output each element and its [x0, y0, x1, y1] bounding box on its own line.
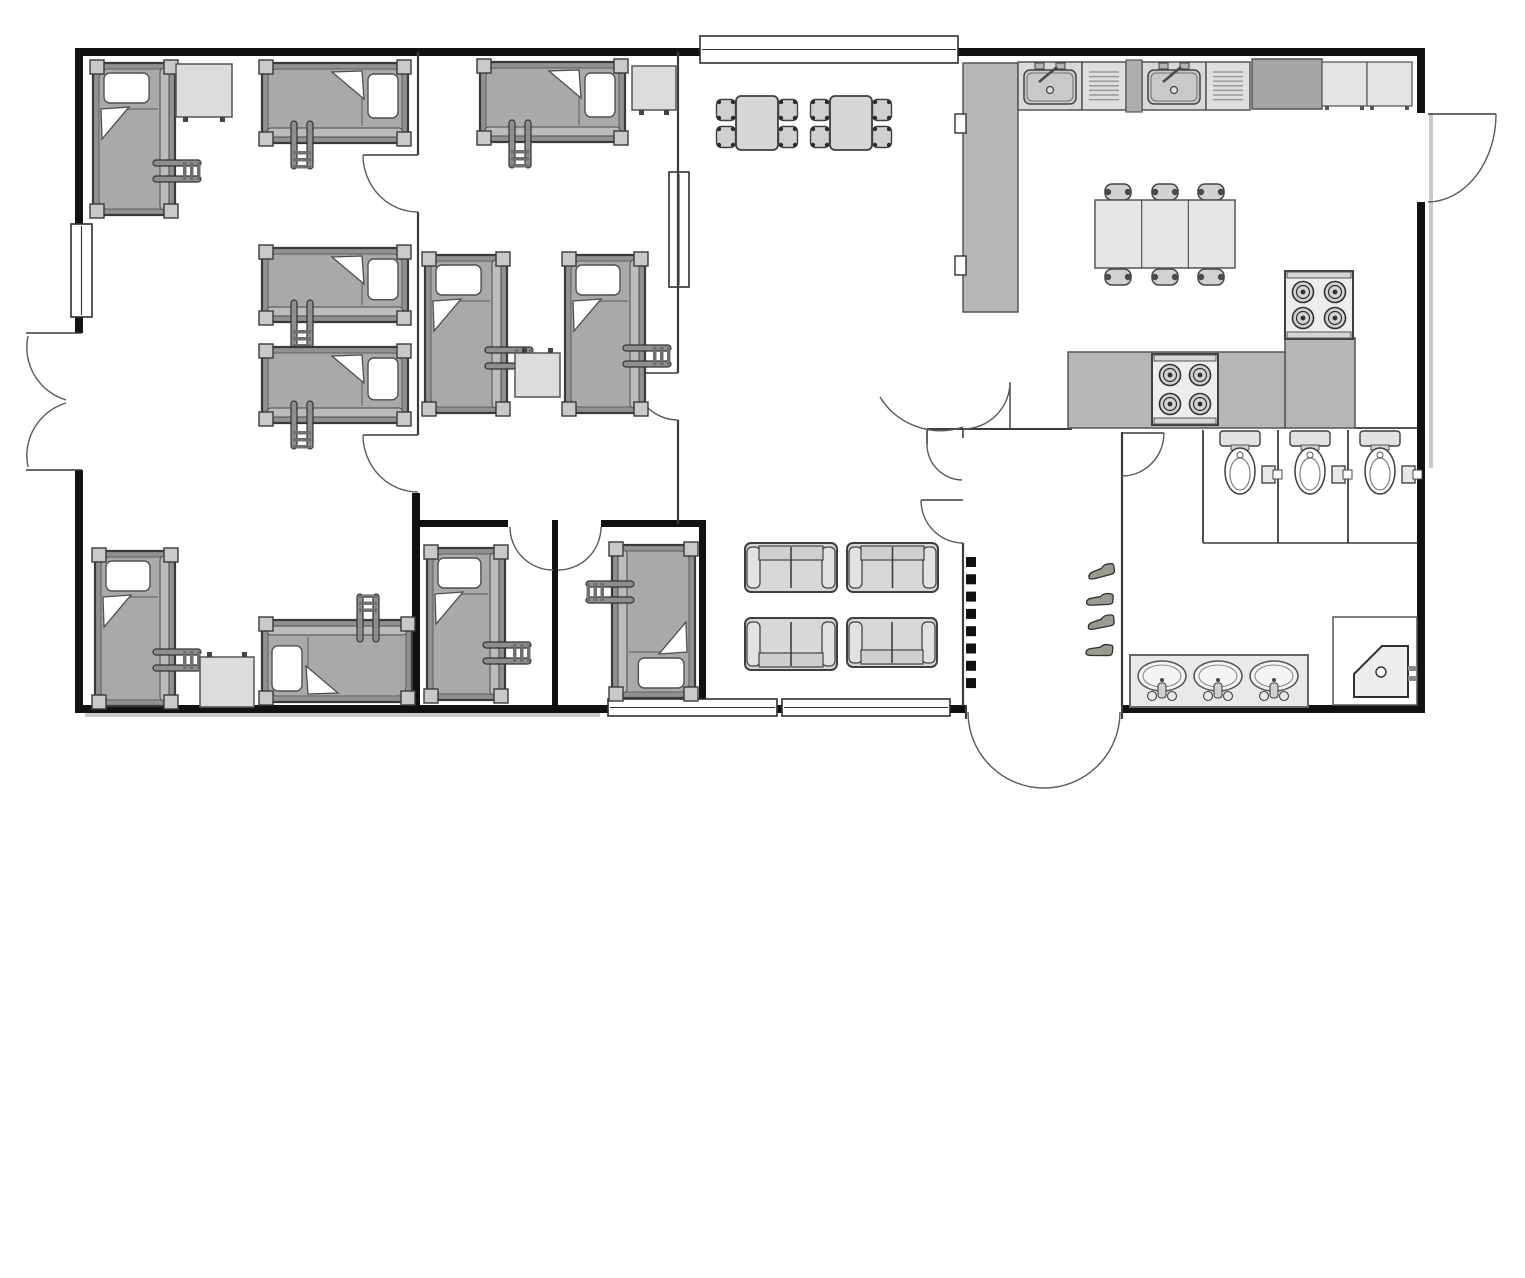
chair-caster	[731, 143, 735, 147]
door-swing-arc	[558, 527, 601, 570]
faucet	[1214, 683, 1222, 698]
chair-caster	[825, 127, 829, 131]
stove	[1285, 271, 1353, 339]
bed-post	[496, 402, 510, 416]
coat-hook	[966, 661, 976, 671]
table-with-chairs	[811, 96, 892, 150]
ladder-rung	[601, 583, 605, 601]
chair-caster	[811, 143, 815, 147]
chair-caster	[825, 100, 829, 104]
toilet	[1290, 431, 1330, 494]
dining-chair	[1198, 184, 1224, 200]
chair	[779, 127, 798, 148]
bed-post	[684, 542, 698, 556]
bed-post	[259, 344, 273, 358]
burner-center	[1333, 316, 1338, 321]
bed-post	[397, 344, 411, 358]
faucet-knob	[1224, 692, 1233, 701]
coat-hook	[966, 592, 976, 602]
ladder-rung	[293, 337, 311, 341]
chair-caster	[731, 100, 735, 104]
bed-pillow	[368, 259, 398, 300]
furniture-layer	[90, 59, 1422, 709]
shoe-outline	[1088, 563, 1116, 579]
ladder-rail	[153, 160, 201, 166]
wall	[1417, 202, 1425, 713]
chair-caster	[873, 143, 877, 147]
bed-post	[397, 412, 411, 426]
ladder-rail	[483, 642, 531, 648]
bed-post	[259, 245, 273, 259]
ladder-rail	[153, 665, 201, 671]
bunk-bed	[259, 594, 415, 705]
door-swing-arc	[27, 336, 66, 400]
window	[71, 224, 92, 317]
faucet-knob	[1260, 692, 1269, 701]
toilet-bowl	[1295, 448, 1325, 494]
tp-roll	[1413, 470, 1422, 479]
bed-post	[424, 689, 438, 703]
ladder-rung	[183, 162, 187, 180]
stove-handle	[1154, 355, 1216, 361]
burner-center	[1301, 290, 1306, 295]
bed-post	[92, 695, 106, 709]
sink-drain	[1047, 87, 1054, 94]
ladder-rung	[293, 438, 311, 442]
ladder-rung	[293, 165, 311, 169]
ladder-rail	[291, 401, 297, 449]
ladder-rung	[653, 347, 657, 365]
stove	[1152, 354, 1218, 425]
cabinet-body	[1367, 62, 1412, 106]
bed-post	[494, 689, 508, 703]
bunk-bed	[562, 252, 671, 416]
kitchen-cabinet	[1322, 62, 1367, 110]
chair-caster	[779, 143, 783, 147]
bed-post	[609, 687, 623, 701]
ladder-rung	[293, 445, 311, 449]
ladder-rung	[293, 151, 311, 155]
desk-foot	[522, 348, 527, 353]
wall-shadow	[1429, 113, 1433, 468]
l-counter	[1285, 338, 1355, 428]
ladder-rail	[357, 594, 363, 642]
bed-post	[259, 691, 273, 705]
chair-caster	[779, 100, 783, 104]
sofa-armrest	[822, 622, 835, 666]
toilet-bowl	[1225, 448, 1255, 494]
ladder-rail	[373, 594, 379, 642]
ladder-rail	[509, 120, 515, 168]
bed-pillow	[638, 658, 684, 688]
toilet-tank	[1360, 431, 1400, 446]
bed-post	[92, 548, 106, 562]
burner-center	[1168, 373, 1173, 378]
ladder-rung	[660, 347, 664, 365]
chair-caster	[811, 127, 815, 131]
bed-post	[634, 402, 648, 416]
door-swing-arc	[921, 500, 963, 543]
faucet-knob	[1204, 692, 1213, 701]
chair	[873, 127, 892, 148]
door-swing-arc	[510, 527, 553, 570]
chair	[873, 100, 892, 121]
bed-post	[90, 204, 104, 218]
chair-caster	[717, 143, 721, 147]
bed-post	[562, 252, 576, 266]
desk-top	[200, 657, 254, 707]
chair-arm	[1125, 274, 1131, 280]
bunk-rail	[160, 556, 169, 701]
bed-post	[259, 311, 273, 325]
sofa	[745, 618, 837, 670]
bed-post	[397, 245, 411, 259]
bed-post	[164, 204, 178, 218]
stove-handle	[1287, 272, 1351, 278]
wall	[601, 520, 705, 527]
wall	[75, 470, 83, 713]
cabinet-foot	[1370, 106, 1374, 110]
door-swing-arc	[880, 397, 963, 431]
chair-arm	[1218, 189, 1224, 195]
kitchen-dining-set	[1095, 184, 1235, 285]
ladder-rail	[623, 361, 671, 367]
table-top	[736, 96, 778, 150]
wall	[699, 520, 706, 712]
ladder-rail	[307, 401, 313, 449]
ladder-rung	[511, 164, 529, 168]
desk-top	[632, 66, 676, 110]
bunk-rail	[267, 626, 407, 635]
ladder-rung	[594, 583, 598, 601]
ladder-rung	[293, 431, 311, 435]
bunk-bed	[259, 344, 411, 449]
ladder-rung	[183, 651, 187, 669]
bunk-rail	[267, 128, 403, 137]
bed-pillow	[585, 73, 615, 117]
burner-center	[1198, 402, 1203, 407]
chair-caster	[887, 127, 891, 131]
counter-divider	[1126, 60, 1142, 112]
dining-chair	[1152, 184, 1178, 200]
faucet	[1270, 683, 1278, 698]
chair-arm	[1105, 274, 1111, 280]
wall	[552, 520, 558, 712]
bed-post	[397, 60, 411, 74]
wall-stub	[955, 114, 966, 133]
coat-hook	[966, 678, 976, 688]
chair-caster	[793, 143, 797, 147]
toilet	[1360, 431, 1400, 494]
bed-post	[424, 545, 438, 559]
chair-caster	[873, 100, 877, 104]
tp-roll	[1343, 470, 1352, 479]
bunk-bed	[424, 545, 531, 703]
faucet-knob	[1168, 692, 1177, 701]
wall-stub	[955, 256, 966, 275]
ladder-rung	[587, 583, 591, 601]
bed-post	[259, 412, 273, 426]
ladder-rail	[525, 120, 531, 168]
stove-body	[1285, 271, 1353, 339]
ladder-rung	[511, 157, 529, 161]
bed-pillow	[576, 265, 620, 295]
bed-post	[259, 60, 273, 74]
chair-arm	[1218, 274, 1224, 280]
ladder-rung	[359, 602, 377, 606]
toilet	[1220, 431, 1260, 494]
sofa-armrest	[747, 622, 760, 666]
dining-table	[1095, 200, 1235, 268]
toilet-tank	[1220, 431, 1260, 446]
chair-caster	[825, 116, 829, 120]
dining-chair	[1152, 269, 1178, 285]
wall-shadow	[85, 713, 600, 717]
coat-hook	[966, 644, 976, 654]
door-swing-arc	[1044, 712, 1120, 788]
desk-top	[515, 353, 560, 397]
sofa-armrest	[922, 622, 935, 663]
bed-post	[477, 59, 491, 73]
kitchen-sink	[1142, 62, 1206, 110]
bunk-rail	[492, 260, 501, 408]
coat-hook	[966, 626, 976, 636]
ladder-rail	[586, 581, 634, 587]
cabinet-foot	[1325, 106, 1329, 110]
chair-caster	[887, 100, 891, 104]
faucet-spout-dot	[1216, 678, 1220, 682]
ladder-rail	[291, 121, 297, 169]
dish-drainer	[1082, 62, 1126, 110]
ladder-rail	[483, 658, 531, 664]
desk-foot	[242, 652, 247, 657]
kitchen-sink	[1018, 62, 1082, 110]
coat-hook	[966, 574, 976, 584]
chair-caster	[779, 127, 783, 131]
ladder-rail	[153, 649, 201, 655]
entry-vestibule	[966, 557, 1115, 688]
ladder-rung	[527, 644, 531, 662]
bed-pillow	[368, 358, 398, 400]
desk-foot	[220, 117, 225, 122]
bed-post	[401, 617, 415, 631]
shoe	[1088, 615, 1115, 630]
bunk-bed	[92, 548, 201, 709]
chair-caster	[731, 127, 735, 131]
desk-foot	[548, 348, 553, 353]
chair-caster	[887, 116, 891, 120]
desk-table	[632, 66, 676, 115]
bunk-rail	[618, 550, 627, 693]
ladder-rung	[197, 162, 201, 180]
bed-post	[90, 60, 104, 74]
dining-chair	[1198, 269, 1224, 285]
faucet	[1158, 683, 1166, 698]
bed-pillow	[436, 265, 481, 295]
table-top	[830, 96, 872, 150]
burner-center	[1198, 373, 1203, 378]
burner-center	[1333, 290, 1338, 295]
kitchen-area	[955, 59, 1412, 428]
chair-arm	[1172, 189, 1178, 195]
bed-pillow	[106, 561, 150, 591]
bed-post	[259, 132, 273, 146]
chair-caster	[873, 127, 877, 131]
bed-post	[397, 132, 411, 146]
bunk-rail	[160, 68, 169, 210]
toilet-tank	[1290, 431, 1330, 446]
sofa-armrest	[849, 547, 862, 588]
sink-drain	[1171, 87, 1178, 94]
shoe	[1086, 642, 1113, 658]
toilet-paper-holder	[1332, 466, 1352, 483]
bunk-bed	[259, 245, 411, 348]
faucet-knob	[1280, 692, 1289, 701]
shoe-outline	[1088, 615, 1115, 630]
chair	[717, 127, 736, 148]
bed-post	[164, 548, 178, 562]
toilet-paper-holder	[1262, 466, 1282, 483]
desk-table	[200, 652, 254, 707]
chair-caster	[825, 143, 829, 147]
bed-post	[634, 252, 648, 266]
table-with-chairs	[717, 96, 798, 150]
chair-arm	[1152, 189, 1158, 195]
ladder-rail	[153, 176, 201, 182]
bunk-rail	[485, 127, 620, 136]
floor-plan-canvas	[0, 0, 1525, 1278]
ladder-rung	[190, 651, 194, 669]
bed-post	[422, 402, 436, 416]
door-swing-arc	[1428, 114, 1496, 202]
shower-drain	[1376, 667, 1386, 677]
window	[700, 36, 958, 63]
bed-post	[259, 617, 273, 631]
ladder-rung	[520, 644, 524, 662]
bed-post	[614, 59, 628, 73]
chair-arm	[1152, 274, 1158, 280]
ladder-rung	[511, 150, 529, 154]
shoe	[1088, 563, 1116, 579]
chair-caster	[717, 100, 721, 104]
bunk-bed	[586, 542, 698, 701]
chair-caster	[779, 116, 783, 120]
chair-caster	[793, 116, 797, 120]
faucet-spout-dot	[1160, 678, 1164, 682]
wall	[1417, 48, 1425, 113]
desk-table	[515, 348, 560, 397]
bunk-rail	[267, 408, 403, 417]
chair-caster	[811, 100, 815, 104]
sofa-armrest	[923, 547, 936, 588]
dining-chair	[1105, 269, 1131, 285]
wall	[412, 493, 420, 712]
ladder-rung	[190, 162, 194, 180]
bunk-bed	[259, 60, 411, 169]
cabinet-foot	[1360, 106, 1364, 110]
door-swing-arc	[363, 155, 418, 212]
stove-handle	[1287, 332, 1351, 338]
chair-caster	[731, 116, 735, 120]
chair-caster	[873, 116, 877, 120]
chair	[811, 127, 830, 148]
corner-shower	[1333, 617, 1417, 705]
bed-post	[609, 542, 623, 556]
bed-post	[614, 131, 628, 145]
ladder-rail	[586, 597, 634, 603]
stove-handle	[1154, 418, 1216, 424]
bunk-rail	[490, 553, 499, 695]
door-swing-arc	[968, 712, 1044, 788]
shoe-outline	[1086, 592, 1113, 607]
faucet-base	[1159, 63, 1168, 69]
burner-center	[1168, 402, 1173, 407]
desk-foot	[639, 110, 644, 115]
kitchen-island-counter	[963, 63, 1018, 312]
coat-hook	[966, 557, 976, 567]
desk-table	[176, 64, 232, 122]
bed-pillow	[272, 646, 302, 691]
chair-caster	[793, 100, 797, 104]
ladder-rung	[359, 595, 377, 599]
wall	[420, 520, 508, 527]
chair	[717, 100, 736, 121]
dining-chair	[1105, 184, 1131, 200]
shower-handle	[1408, 666, 1417, 671]
shoe-outline	[1086, 642, 1113, 658]
ladder-rung	[293, 158, 311, 162]
cabinet-foot	[1405, 106, 1409, 110]
kitchen-cabinet	[1367, 62, 1412, 110]
bed-post	[401, 691, 415, 705]
chair	[779, 100, 798, 121]
bed-pillow	[104, 73, 149, 103]
dish-drainer	[1206, 62, 1250, 110]
bed-post	[496, 252, 510, 266]
sofa	[745, 543, 837, 592]
window	[782, 699, 950, 716]
chair-caster	[887, 143, 891, 147]
sofa-armrest	[849, 622, 862, 663]
chair-arm	[1198, 274, 1204, 280]
bed-post	[397, 311, 411, 325]
chair-arm	[1198, 189, 1204, 195]
door-swing-arc	[963, 382, 1010, 429]
shoe	[1086, 592, 1113, 607]
shower-handle	[1408, 676, 1417, 681]
bunk-rail	[630, 260, 639, 408]
faucet-spout-dot	[1272, 678, 1276, 682]
chair-arm	[1172, 274, 1178, 280]
ladder-rail	[307, 300, 313, 348]
sofa	[847, 543, 938, 592]
chair-caster	[811, 116, 815, 120]
ladder-rail	[307, 121, 313, 169]
desk-top	[176, 64, 232, 117]
burner-center	[1301, 316, 1306, 321]
ladder-rung	[293, 330, 311, 334]
wall	[950, 705, 966, 713]
bathroom-area	[1130, 431, 1422, 707]
bed-post	[422, 252, 436, 266]
chair-caster	[717, 116, 721, 120]
desk-foot	[183, 117, 188, 122]
chair-caster	[793, 127, 797, 131]
door-swing-arc	[927, 444, 962, 480]
bed-post	[477, 131, 491, 145]
chair-caster	[717, 127, 721, 131]
bed-post	[494, 545, 508, 559]
